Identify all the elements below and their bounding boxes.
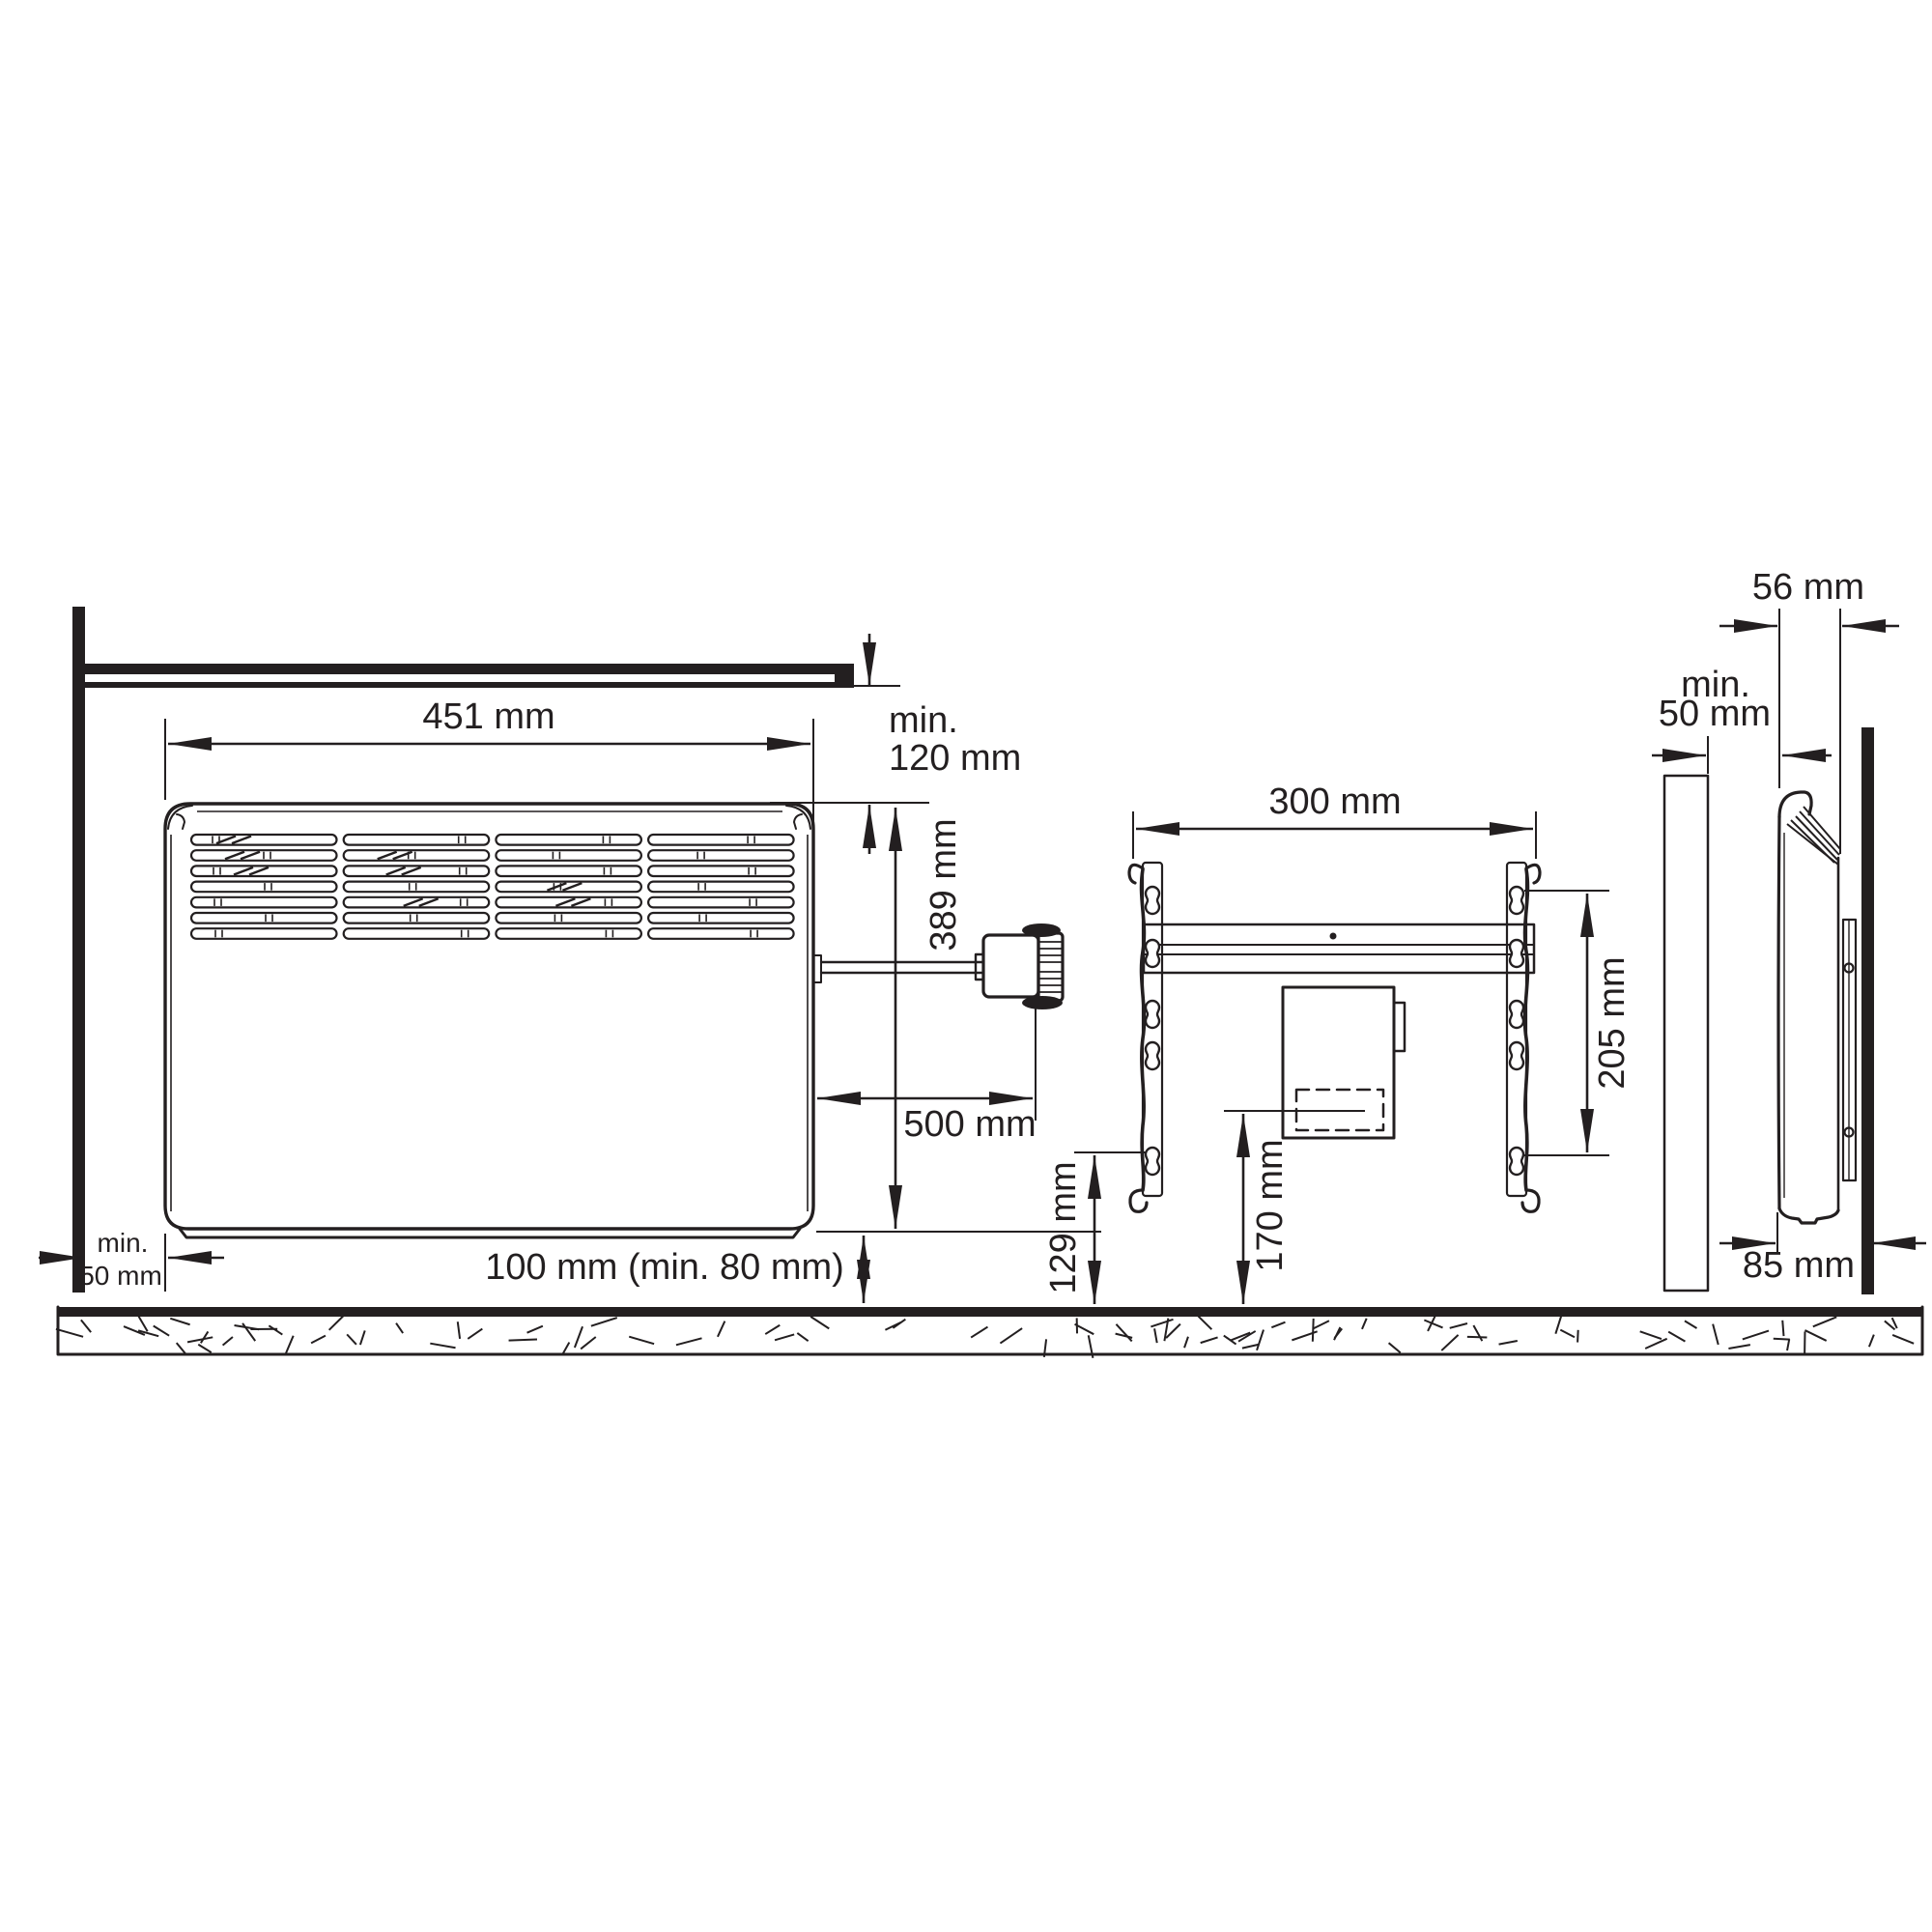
floor-speckle (201, 1331, 209, 1343)
floor-speckle (286, 1336, 294, 1353)
floor-speckle (1313, 1319, 1314, 1342)
keyhole-slot (1510, 1042, 1523, 1069)
dimension-bracket-205: 205 mm (1524, 891, 1633, 1155)
floor-speckle (396, 1323, 403, 1333)
floor-speckle (1577, 1330, 1578, 1343)
label-depth-56: 56 mm (1752, 567, 1864, 608)
junction-box (1283, 987, 1405, 1138)
floor-speckle (509, 1340, 537, 1341)
keyhole-slot (1510, 940, 1523, 967)
floor-speckle (810, 1317, 829, 1329)
grille-slat (496, 928, 641, 939)
label-ceiling-clearance-2: 120 mm (889, 738, 1021, 779)
floor-speckle (1743, 1331, 1769, 1340)
grille-slat (191, 928, 337, 939)
side-front-face (1778, 816, 1779, 1208)
heater-grille (191, 835, 794, 939)
floor (56, 1307, 1922, 1358)
floor-speckle (1334, 1327, 1340, 1340)
floor-speckle (198, 1345, 212, 1352)
floor-speckle (242, 1323, 255, 1341)
floor-speckle (1450, 1323, 1467, 1328)
dimension-width-451: 451 mm (165, 696, 813, 835)
floor-speckle (347, 1334, 356, 1344)
side-top-grille (1787, 807, 1840, 865)
floor-surface (58, 1307, 1922, 1317)
keyhole-slot (1510, 1148, 1523, 1175)
plug-grip-top (1022, 923, 1061, 937)
grille-slat (648, 897, 794, 908)
floor-speckle (765, 1325, 780, 1334)
combustible-panel (1664, 776, 1708, 1291)
power-cord (821, 962, 983, 973)
left-rail-bottom-hook (1130, 1190, 1147, 1211)
label-ceiling-clearance-1: min. (889, 700, 958, 741)
grille-slat (648, 882, 794, 893)
floor-speckle (575, 1326, 582, 1348)
floor-speckle (581, 1337, 596, 1349)
floor-speckle (1685, 1321, 1697, 1328)
keyhole-slot (1510, 1001, 1523, 1028)
floor-speckle (1499, 1341, 1518, 1345)
right-rail-bottom-hook (1522, 1190, 1539, 1211)
floor-speckle (1774, 1339, 1790, 1340)
floor-speckle (1728, 1345, 1749, 1349)
label-floor-clearance: 100 mm (min. 80 mm) (485, 1247, 844, 1288)
ceiling-bar (85, 664, 854, 674)
floor-speckle (971, 1327, 987, 1338)
power-plug (976, 923, 1063, 1009)
label-height-389: 389 mm (923, 818, 964, 951)
grille-slat (648, 835, 794, 845)
floor-speckle (885, 1322, 900, 1330)
floor-speckle (1441, 1335, 1458, 1350)
floor-speckle (1116, 1324, 1131, 1342)
label-left-clearance-2: 50 mm (79, 1261, 162, 1291)
floor-speckle (527, 1326, 543, 1333)
dimension-total-85: 85 mm (1719, 1212, 1926, 1286)
grille-slat (496, 835, 641, 845)
grille-slat (648, 928, 794, 939)
floor-speckle (1151, 1320, 1173, 1327)
heater-front-view (165, 804, 821, 1237)
floor-speckle (1668, 1332, 1685, 1342)
grille-slat (344, 866, 490, 876)
floor-speckle (430, 1344, 455, 1349)
floor-speckle (1560, 1330, 1575, 1338)
floor-speckle (177, 1343, 185, 1353)
label-left-clearance-1: min. (98, 1228, 149, 1258)
label-outlet-170: 170 mm (1250, 1139, 1291, 1271)
floor-speckle (1184, 1337, 1188, 1348)
bracket-side-view (1843, 920, 1856, 1180)
floor-speckle (311, 1336, 326, 1344)
right-wall (1861, 727, 1874, 1294)
floor-speckle (1201, 1337, 1218, 1343)
keyhole-slot (1146, 1042, 1159, 1069)
grille-slat (344, 850, 490, 861)
keyhole-slot (1146, 940, 1159, 967)
ceiling-line (85, 682, 838, 688)
label-bracket-129: 129 mm (1043, 1161, 1084, 1293)
floor-speckle (1257, 1330, 1264, 1350)
floor-speckle (81, 1320, 91, 1332)
grille-slat (648, 913, 794, 923)
grille-slat (344, 835, 490, 845)
floor-speckle (1782, 1321, 1783, 1336)
keyhole-slot (1510, 887, 1523, 914)
label-bracket-205: 205 mm (1592, 956, 1633, 1089)
floor-speckle (797, 1333, 808, 1341)
floor-speckle (329, 1315, 345, 1330)
bracket-crossbar (1144, 924, 1534, 973)
floor-speckle (775, 1334, 794, 1340)
floor-speckle (1000, 1328, 1022, 1343)
dimension-side-clearance: min. 50 mm (1652, 665, 1832, 774)
side-bottom-edge (1779, 1208, 1838, 1223)
dimension-outlet-170: 170 mm (1224, 1111, 1365, 1304)
grille-slat (496, 850, 641, 861)
floor-speckle (629, 1337, 654, 1345)
floor-speckle (170, 1319, 189, 1324)
dimension-bracket-129: 129 mm (1043, 1152, 1146, 1304)
floor-speckle (56, 1329, 83, 1337)
floor-speckle (468, 1329, 482, 1339)
label-width-451: 451 mm (422, 696, 554, 737)
floor-speckle (676, 1338, 702, 1345)
floor-speckle (1242, 1345, 1259, 1349)
crossbar-hole (1330, 933, 1337, 940)
label-cord-500: 500 mm (903, 1104, 1036, 1145)
floor-speckle (1154, 1328, 1157, 1343)
floor-speckle (1467, 1337, 1487, 1338)
grille-slat (496, 913, 641, 923)
plug-grip-bottom (1022, 996, 1063, 1009)
bracket-left-rail (1129, 863, 1162, 1211)
dimension-bracket-300: 300 mm (1133, 781, 1536, 859)
grille-slat (648, 850, 794, 861)
floor-speckle (1473, 1325, 1482, 1341)
ceiling-end-cap (835, 664, 854, 688)
floor-speckle (1787, 1339, 1789, 1350)
installation-diagram: 451 mm min. 120 mm 389 mm 500 mm 100 mm … (0, 0, 1932, 1932)
front-view-scene: 451 mm min. 120 mm 389 mm 500 mm 100 mm … (39, 607, 1101, 1303)
floor-speckle (360, 1330, 365, 1345)
floor-speckle (1116, 1334, 1133, 1338)
label-side-clearance-2: 50 mm (1659, 694, 1771, 734)
heater-side-view (1778, 792, 1840, 1223)
floor-speckle (269, 1325, 282, 1334)
grille-slat (496, 866, 641, 876)
floor-speckle (1804, 1330, 1826, 1341)
floor-speckle (1713, 1324, 1719, 1345)
floor-speckle (1271, 1322, 1285, 1328)
side-top-cap (1779, 792, 1811, 817)
floor-speckle (1640, 1331, 1662, 1339)
floor-speckles (56, 1314, 1914, 1358)
floor-speckle (458, 1321, 460, 1339)
mounting-bracket-scene: 300 mm 205 mm 129 mm 170 mm (1043, 781, 1633, 1304)
label-bracket-300: 300 mm (1268, 781, 1401, 822)
dimension-cord-500: 500 mm (817, 1007, 1037, 1145)
floor-speckle (1389, 1343, 1401, 1352)
floor-speckle (223, 1337, 233, 1346)
floor-speckle (187, 1337, 213, 1342)
floor-speckle (1166, 1324, 1180, 1339)
floor-speckle (154, 1325, 169, 1335)
dimension-floor-clearance: 100 mm (min. 80 mm) (485, 1236, 864, 1303)
left-wall (72, 607, 85, 1293)
label-total-85: 85 mm (1743, 1245, 1855, 1286)
junction-box-tab (1394, 1003, 1405, 1051)
floor-speckle (718, 1321, 724, 1337)
side-view-scene: 56 mm min. 50 mm 85 mm (1652, 567, 1926, 1294)
grille-slat (344, 928, 490, 939)
floor-speckle (591, 1318, 617, 1326)
grille-slat (496, 882, 641, 893)
bracket-right-rail (1507, 863, 1540, 1211)
floor-speckle (562, 1343, 569, 1355)
plug-body (983, 935, 1038, 997)
floor-speckle (1869, 1335, 1874, 1348)
floor-speckle (1313, 1321, 1328, 1328)
grille-slat (191, 913, 337, 923)
grille-slat (191, 897, 337, 908)
floor-speckle (1645, 1339, 1667, 1349)
keyhole-slot (1146, 1001, 1159, 1028)
floor-speckle (1813, 1317, 1836, 1326)
floor-speckle (1555, 1316, 1561, 1333)
ceiling (85, 664, 900, 688)
installation-diagram-page: 451 mm min. 120 mm 389 mm 500 mm 100 mm … (0, 0, 1932, 1932)
keyhole-slot (1146, 1148, 1159, 1175)
plug-knurled-cap (1038, 933, 1063, 1001)
keyhole-slot (1146, 887, 1159, 914)
floor-speckle (1892, 1335, 1914, 1344)
plug-ribs (1038, 942, 1063, 992)
grille-slat (648, 866, 794, 876)
floor-speckle (1362, 1319, 1367, 1329)
